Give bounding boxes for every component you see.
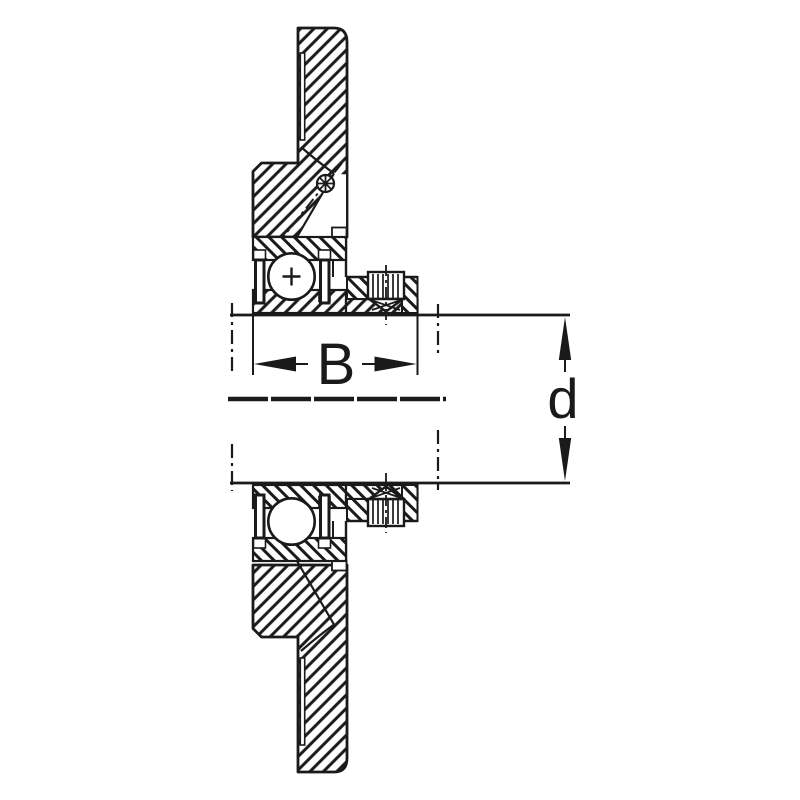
dim-B-arrow-left: [254, 357, 296, 372]
collar-left-wall-bottom: [347, 499, 368, 521]
flange-bottom-slot: [300, 658, 304, 745]
dim-d: d: [547, 317, 578, 481]
ball-bottom: [268, 498, 314, 544]
seal-left-top: [256, 260, 265, 303]
dim-B-arrow-right: [375, 357, 417, 372]
dim-d-arrow-up: [559, 317, 571, 360]
dim-d-arrow-down: [559, 438, 571, 481]
grease-hole-spokes: [317, 175, 334, 192]
seal-right-top: [321, 260, 330, 303]
seal-left-bottom: [256, 495, 265, 538]
bearing-unit-drawing: B d: [0, 0, 800, 800]
seal-right-bottom: [321, 495, 330, 538]
diagram-canvas: B d: [0, 0, 800, 800]
collar-left-wall-top: [347, 277, 368, 299]
dim-d-label: d: [547, 367, 578, 430]
shaft-outline: [228, 303, 570, 491]
dim-B: B: [253, 304, 418, 397]
flange-top-slot: [300, 53, 304, 140]
dim-B-label: B: [317, 332, 356, 397]
